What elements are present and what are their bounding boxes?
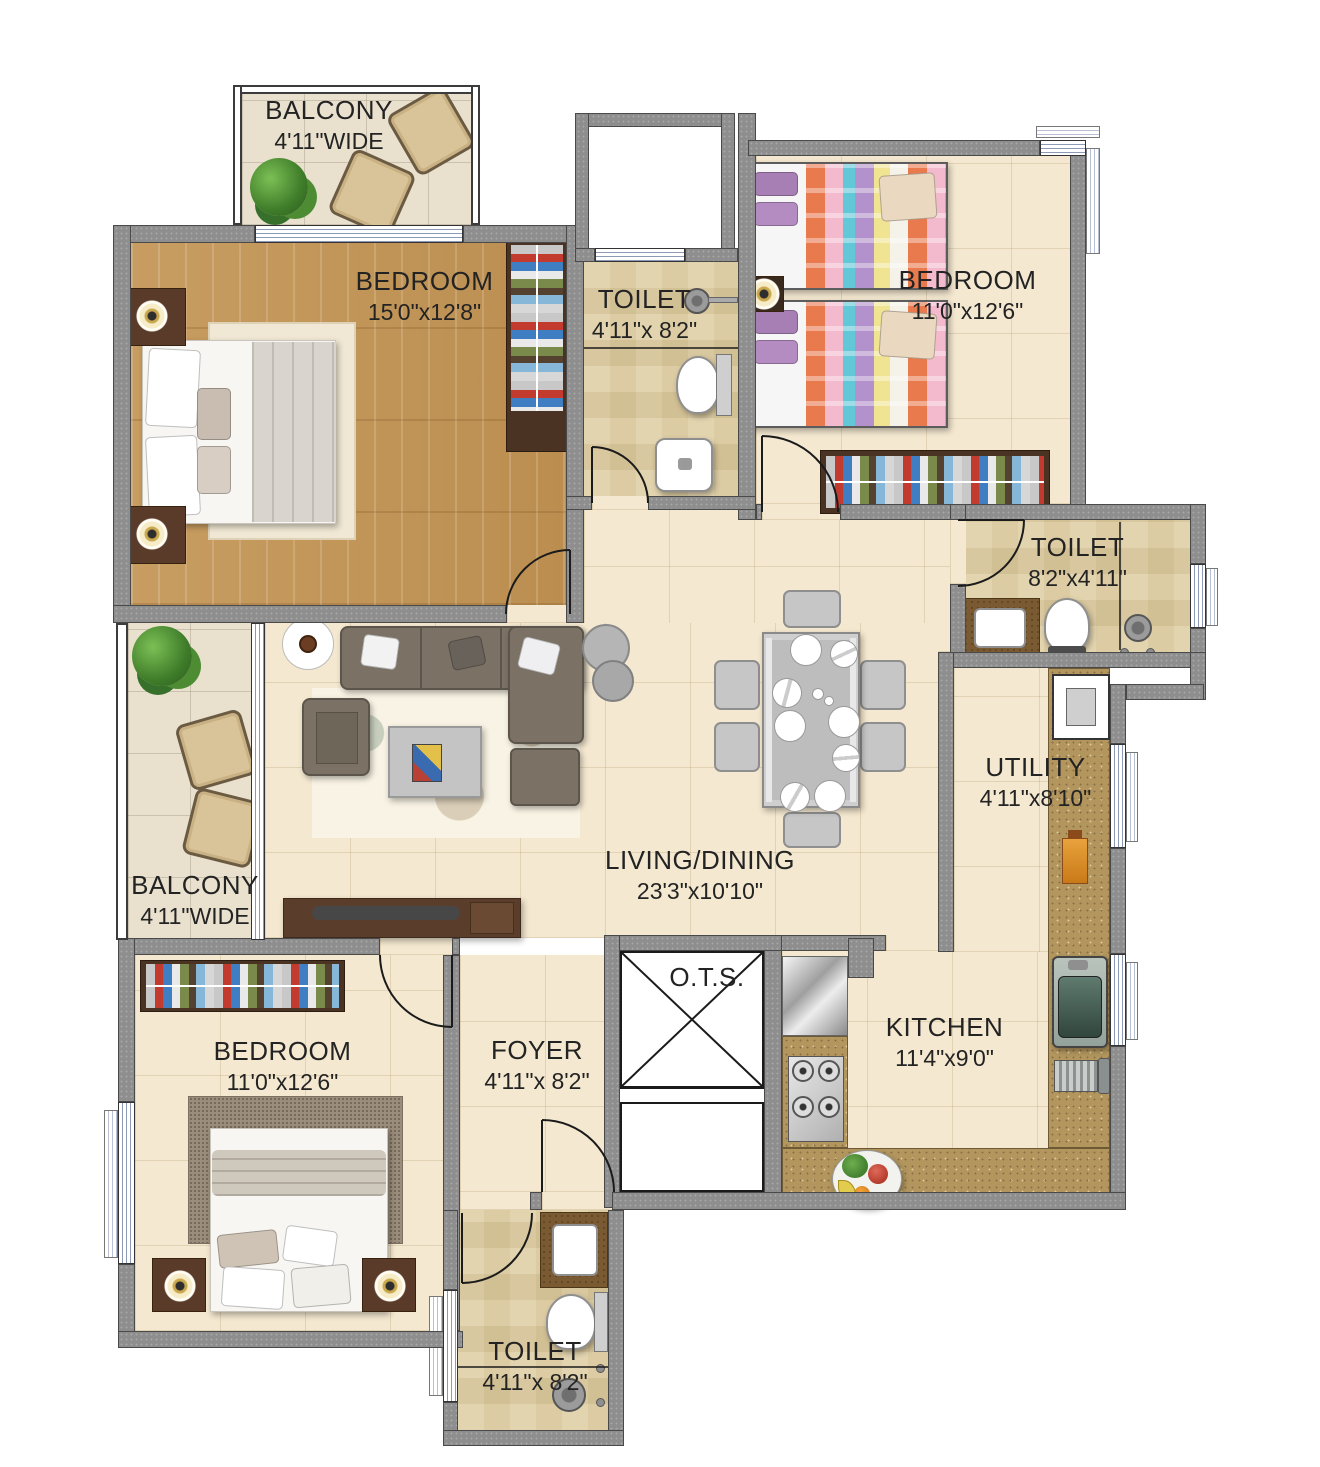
wall (443, 1430, 624, 1446)
wall (950, 504, 966, 520)
window (1110, 954, 1126, 1046)
sofa-pillow (360, 634, 400, 671)
room-dims: 4'11"x8'10" (958, 785, 1113, 813)
room-label-toilet-top: TOILET 4'11"x 8'2" (572, 284, 717, 345)
wall (1110, 684, 1126, 744)
master-blanket (252, 342, 336, 522)
wall (443, 1210, 458, 1290)
record-center (299, 635, 317, 653)
plate (814, 780, 846, 812)
lamp-icon (134, 298, 170, 334)
room-label-balcony-left: BALCONY 4'11"WIDE (120, 870, 270, 931)
room-label-toilet-right: TOILET 8'2"x4'11" (990, 532, 1165, 593)
room-label-ots: O.T.S. (652, 962, 762, 993)
water-closet (676, 356, 720, 414)
room-dims: 11'0"x12'6" (875, 298, 1060, 326)
room-name: TOILET (572, 284, 717, 315)
dish-rack (1054, 1060, 1098, 1092)
door-threshold (950, 520, 966, 584)
door-threshold (592, 496, 648, 510)
balcony-railing (233, 85, 242, 225)
canister (1098, 1058, 1110, 1094)
duct-shaft (589, 127, 721, 248)
wall (1190, 504, 1206, 564)
bed-blanket (212, 1150, 386, 1196)
room-dims: 4'11"WIDE (120, 903, 270, 931)
wall (764, 935, 782, 1208)
balcony-railing (233, 85, 480, 94)
floor-plan: BALCONY 4'11"WIDE BEDROOM 15'0"x12'8" TO… (0, 0, 1320, 1467)
wall (1110, 1046, 1126, 1208)
burner-icon (818, 1096, 840, 1118)
room-dims: 4'11"x 8'2" (572, 317, 717, 345)
wall (575, 113, 589, 262)
master-pillow (145, 435, 201, 518)
dining-chair (714, 660, 760, 710)
duct-lower (620, 1102, 764, 1192)
utility-sink-basin (1066, 688, 1096, 726)
wall (1126, 684, 1204, 700)
tv-shelf (470, 902, 514, 934)
plant-icon (132, 626, 192, 686)
water-closet (1044, 598, 1090, 652)
room-dims: 4'11"x 8'2" (462, 1068, 612, 1096)
dining-chair (860, 722, 906, 772)
room-dims: 8'2"x4'11" (990, 565, 1165, 593)
lamp-icon (162, 1268, 198, 1304)
room-name: FOYER (462, 1035, 612, 1066)
wall (113, 605, 507, 623)
door-threshold (380, 938, 452, 955)
twin-pillow (754, 172, 798, 196)
wardrobe-clothes (146, 964, 339, 1008)
ots-divider (620, 1086, 764, 1089)
lamp-icon (134, 516, 170, 552)
plate (828, 706, 860, 738)
room-label-balcony-top: BALCONY 4'11"WIDE (248, 95, 410, 156)
magazine (412, 744, 442, 782)
room-name: O.T.S. (652, 962, 762, 993)
bed-pillow (282, 1225, 339, 1268)
wall (452, 938, 460, 955)
plant-icon (250, 158, 308, 216)
room-name: BEDROOM (190, 1036, 375, 1067)
wall (738, 113, 756, 520)
window (1190, 564, 1206, 628)
lamp-icon (372, 1268, 408, 1304)
dining-chair (783, 590, 841, 628)
room-label-utility: UTILITY 4'11"x8'10" (958, 752, 1113, 813)
dining-chair (860, 660, 906, 710)
window-sill (1126, 752, 1138, 842)
detergent-bottle (1062, 838, 1088, 884)
room-label-bedroom-bottom: BEDROOM 11'0"x12'6" (190, 1036, 375, 1097)
side-table (592, 660, 634, 702)
wall (950, 504, 1206, 520)
ottoman (510, 748, 580, 806)
wash-basin (552, 1224, 598, 1276)
master-accent-pillow (197, 388, 231, 440)
wall (612, 1192, 1126, 1210)
door-threshold (507, 605, 566, 623)
burner-icon (792, 1096, 814, 1118)
window-sill (1206, 568, 1218, 626)
wall (1070, 140, 1086, 520)
wall (721, 113, 735, 262)
window (595, 248, 685, 262)
wall (938, 652, 954, 952)
twin-head-pillow (878, 172, 937, 222)
wall (748, 140, 1040, 156)
room-label-bedroom-master: BEDROOM 15'0"x12'8" (342, 266, 507, 327)
wall (604, 935, 782, 951)
shower-icon (1124, 614, 1152, 642)
wall (530, 1192, 542, 1210)
wall (566, 496, 592, 510)
glass (812, 688, 824, 700)
window (1040, 140, 1086, 156)
window-sill (104, 1110, 118, 1258)
wc-tank (716, 354, 732, 416)
kitchen-bottom-counter (782, 1148, 1110, 1194)
window-sill (1036, 126, 1100, 138)
wall (1110, 848, 1126, 954)
wall (575, 113, 735, 127)
room-dims: 4'11"WIDE (248, 128, 410, 156)
detergent-cap (1068, 830, 1082, 838)
wall (575, 248, 595, 262)
room-name: BEDROOM (875, 265, 1060, 296)
dining-chair (714, 722, 760, 772)
room-name: BALCONY (248, 95, 410, 126)
room-label-foyer: FOYER 4'11"x 8'2" (462, 1035, 612, 1096)
room-label-living-dining: LIVING/DINING 23'3"x10'10" (600, 845, 800, 906)
bed-pillow (221, 1266, 286, 1310)
master-accent-pillow (197, 446, 231, 494)
wall (608, 1210, 624, 1446)
twin-pillow (754, 202, 798, 226)
door-threshold (460, 1192, 530, 1210)
master-pillow (145, 348, 201, 429)
wash-basin (974, 608, 1026, 648)
tv-screen (312, 906, 460, 920)
room-name: UTILITY (958, 752, 1113, 783)
bed-pillow (290, 1264, 351, 1309)
wall (113, 225, 255, 243)
window-sill (1126, 962, 1138, 1040)
twin-pillow (754, 310, 798, 334)
room-dims: 23'3"x10'10" (600, 878, 800, 906)
wall (118, 938, 135, 1102)
glass (824, 696, 834, 706)
room-dims: 15'0"x12'8" (342, 299, 507, 327)
plate (790, 634, 822, 666)
burner-icon (792, 1060, 814, 1082)
fruit-apple (868, 1164, 888, 1184)
wall (118, 938, 380, 955)
wall (648, 496, 756, 510)
room-name: BALCONY (120, 870, 270, 901)
room-label-kitchen: KITCHEN 11'4"x9'0" (862, 1012, 1027, 1073)
sink-basin (1058, 976, 1102, 1038)
dining-chair (783, 812, 841, 848)
wall (113, 225, 131, 623)
burner-icon (818, 1060, 840, 1082)
balcony-railing (471, 85, 480, 225)
room-name: BEDROOM (342, 266, 507, 297)
room-dims: 11'4"x9'0" (862, 1045, 1027, 1073)
kitchen-passage (886, 935, 938, 951)
room-name: LIVING/DINING (600, 845, 800, 876)
room-name: TOILET (455, 1336, 615, 1367)
room-label-toilet-bottom: TOILET 4'11"x 8'2" (455, 1336, 615, 1397)
plate (774, 710, 806, 742)
wall (938, 652, 1206, 668)
window-sill (1086, 148, 1100, 254)
shower-tap (596, 1398, 605, 1407)
wardrobe-clothes (826, 456, 1044, 508)
armchair-seat (316, 712, 358, 764)
stainless-platform (782, 956, 848, 1036)
fruit-grapes (842, 1154, 868, 1178)
window (255, 225, 463, 243)
table-runner (766, 638, 772, 802)
wall (848, 938, 874, 978)
wall (685, 248, 738, 262)
wardrobe-clothes (511, 245, 563, 411)
room-label-bedroom-right: BEDROOM 11'0"x12'6" (875, 265, 1060, 326)
room-dims: 4'11"x 8'2" (455, 1369, 615, 1397)
window (118, 1102, 135, 1264)
basin-tap (678, 458, 692, 470)
wall (756, 504, 762, 520)
twin-pillow (754, 340, 798, 364)
room-name: KITCHEN (862, 1012, 1027, 1043)
sink-tap (1068, 960, 1088, 970)
wall (118, 1331, 463, 1348)
room-dims: 11'0"x12'6" (190, 1069, 375, 1097)
bed-pillow (216, 1229, 279, 1269)
room-name: TOILET (990, 532, 1165, 563)
